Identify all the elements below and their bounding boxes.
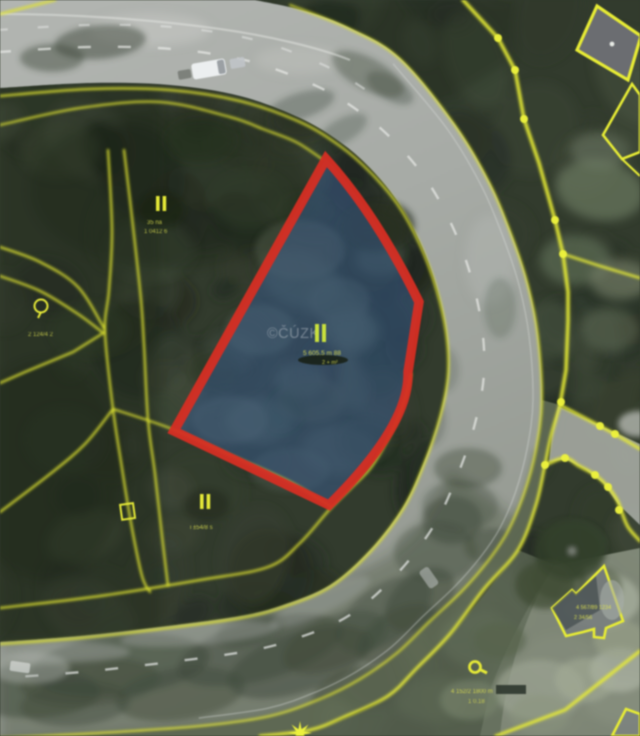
- svg-text:2 34/56: 2 34/56: [574, 615, 592, 621]
- svg-text:i ±54/8 s: i ±54/8 s: [190, 525, 213, 531]
- svg-text:1 0.18: 1 0.18: [468, 699, 485, 705]
- svg-text:4 567/89 1234: 4 567/89 1234: [576, 605, 611, 611]
- svg-text:4 152/2 1800 m: 4 152/2 1800 m: [451, 689, 493, 695]
- svg-text:2 124/4 2: 2 124/4 2: [28, 332, 54, 338]
- svg-text:2 + m²: 2 + m²: [322, 360, 338, 366]
- svg-text:©ČÚZK: ©ČÚZK: [267, 325, 320, 342]
- svg-text:1 0412 6: 1 0412 6: [144, 229, 168, 235]
- svg-text:35 na: 35 na: [147, 220, 163, 226]
